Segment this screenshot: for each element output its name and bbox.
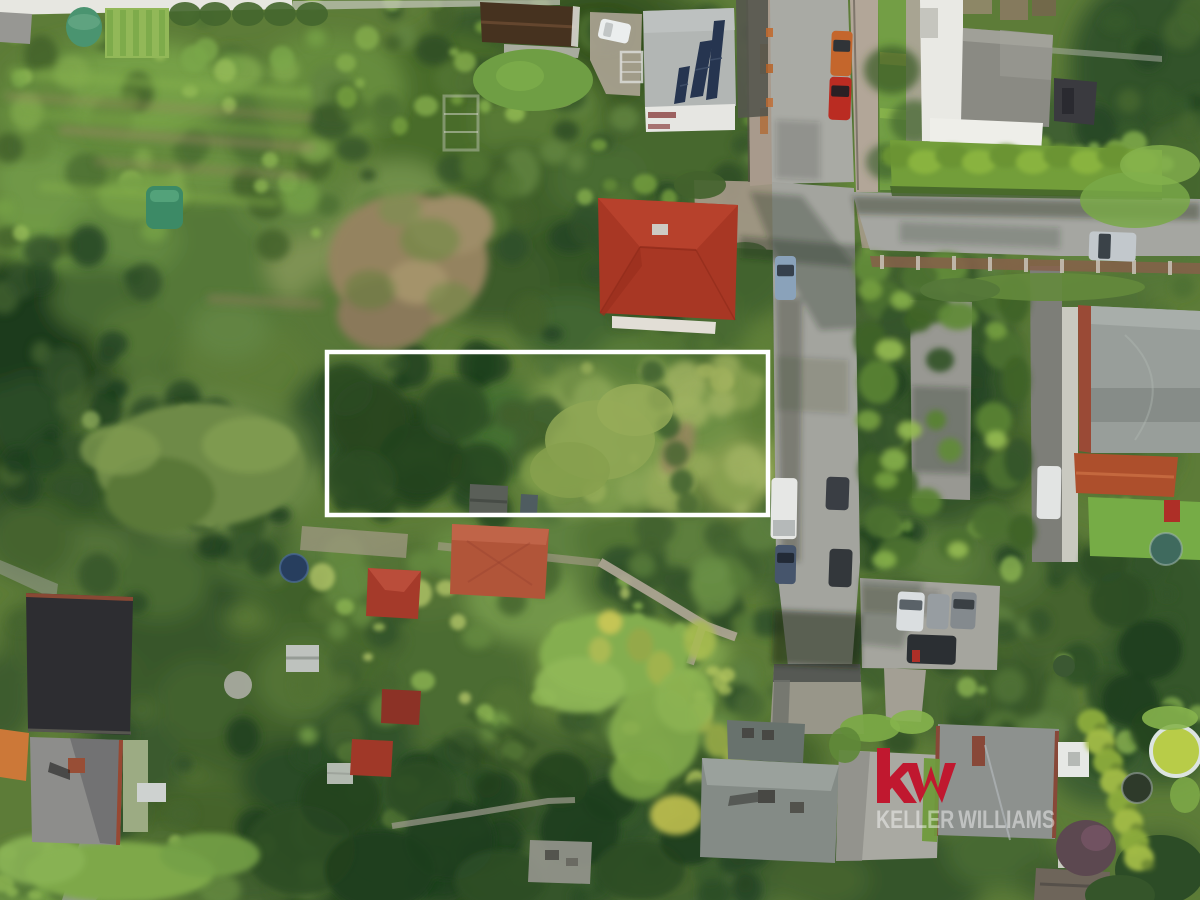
svg-text:KELLER WILLIAMS: KELLER WILLIAMS [876,806,1055,834]
